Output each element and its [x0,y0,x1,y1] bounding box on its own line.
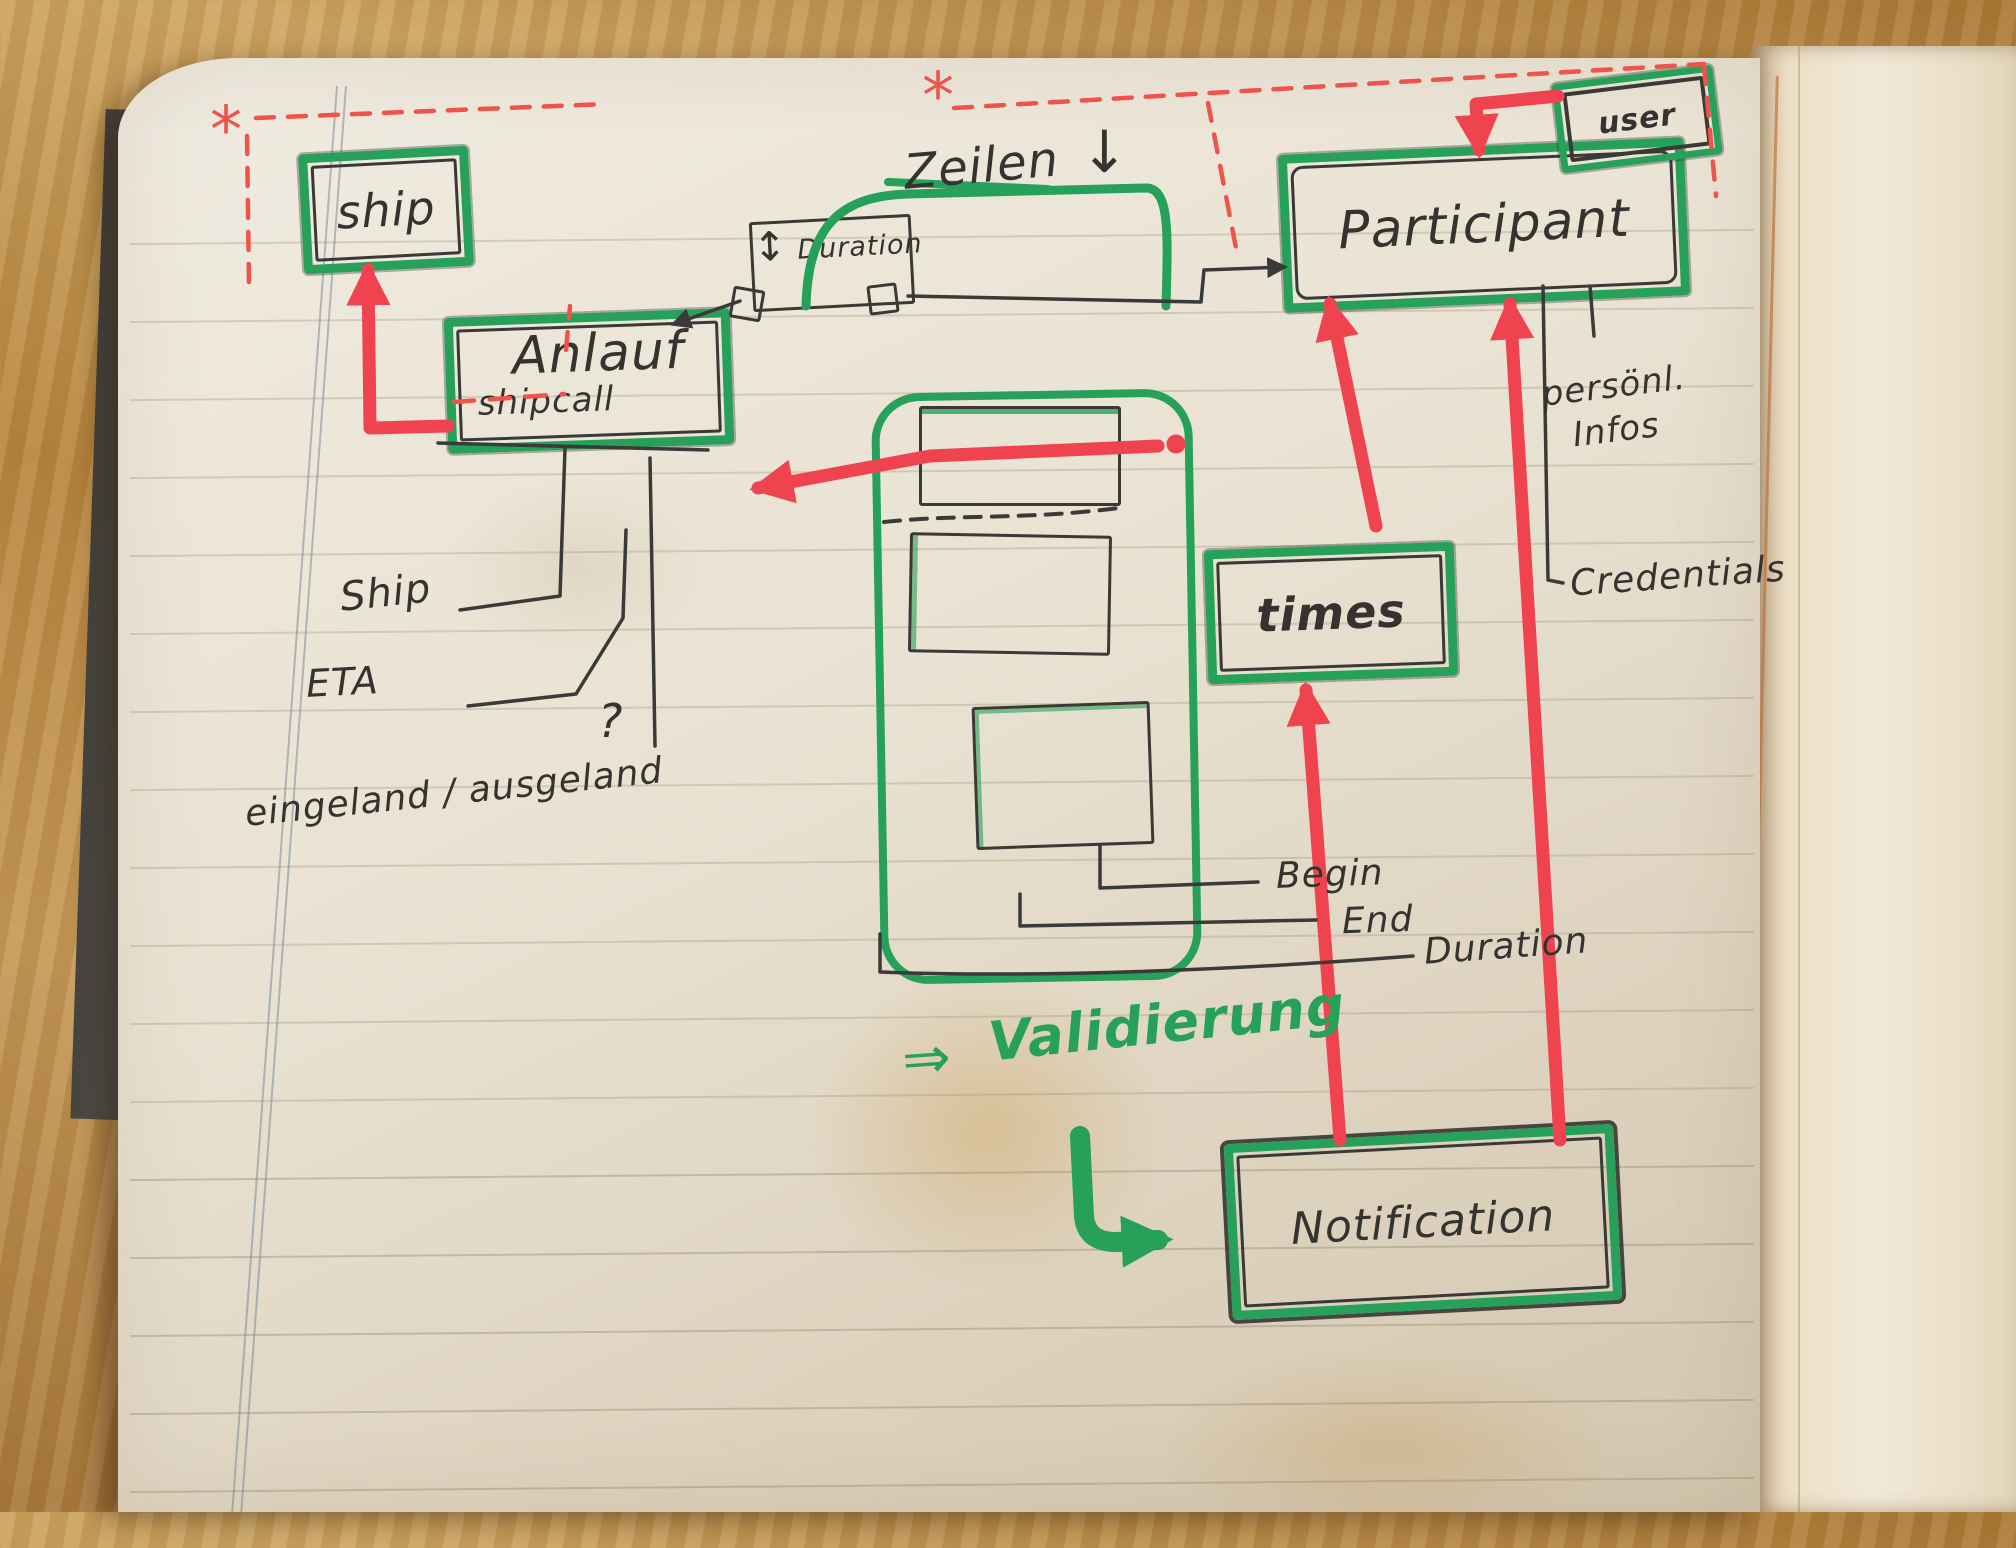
attribute-end: End [1341,899,1414,942]
attribute-personal-infos: persönl. Infos [1539,356,1693,461]
participant-group-dash-left [1208,103,1236,248]
ruled-line [130,307,1754,323]
entity-box-anlauf: Anlauf shipcall [444,308,735,454]
attribute-ship: Ship [338,565,434,620]
attribute-eta: ETA [305,658,380,706]
arrow-duration-to-participant [908,267,1284,302]
down-arrow-icon: ↓ [1080,118,1130,186]
attribute-inbound-outbound: eingeland / ausgeland [243,750,665,835]
asterisk-marker: * [210,94,243,168]
entity-label-duration: Duration [797,228,924,266]
entity-box-times: times [1204,542,1459,685]
arrow-notification-to-times [1306,690,1340,1140]
question-line [650,458,655,746]
implies-arrow-icon: ⇒ [900,1022,954,1093]
eta-attr-line [468,530,626,706]
zeilen-annotation: Zeilen [902,131,1061,200]
arrow-user-to-participant [1476,96,1558,150]
arrow-anlauf-to-ship [368,270,448,428]
column-slot-2 [908,532,1112,656]
entity-label-user: user [1562,76,1711,163]
asterisk-marker: * [922,60,955,134]
coffee-stain [1158,1348,1618,1548]
notebook-page: ship Anlauf shipcall ↕ Duration Particip… [118,58,1760,1512]
attribute-begin: Begin [1275,852,1384,897]
entity-sublabel-shipcall: shipcall [477,379,615,424]
entity-box-ship: ship [298,146,474,275]
resize-arrow-icon: ↕ [752,223,789,271]
page-crease [1798,46,1800,1512]
column-slot-1 [919,406,1121,506]
entity-label-times: times [1216,554,1446,672]
ship-group-dash-left [247,136,249,284]
validation-annotation: Validierung [986,973,1349,1073]
ship-group-dash-top [256,104,606,118]
entity-label-notification: Notification [1236,1137,1609,1308]
ruled-line [130,1399,1754,1415]
duration-foot-square [728,285,765,322]
duration-foot-square [866,282,899,315]
ruled-line [130,1321,1754,1337]
page-stack-right [1752,46,2016,1512]
ruled-line [130,1477,1754,1493]
entity-box-notification: Notification [1224,1124,1623,1320]
attribute-duration: Duration [1423,920,1590,972]
entity-label-participant: Participant [1290,150,1677,301]
green-hook-arrow-to-notification [1080,1136,1158,1242]
entity-label-anlauf: Anlauf [511,321,685,387]
question-mark: ? [598,694,623,748]
attribute-credentials: Credentials [1569,549,1787,605]
arrow-times-to-participant [1330,304,1376,526]
entity-label-ship: ship [311,158,462,262]
ship-attr-line [460,448,565,610]
entity-box-user: user [1551,64,1723,173]
column-slot-3 [972,701,1155,850]
